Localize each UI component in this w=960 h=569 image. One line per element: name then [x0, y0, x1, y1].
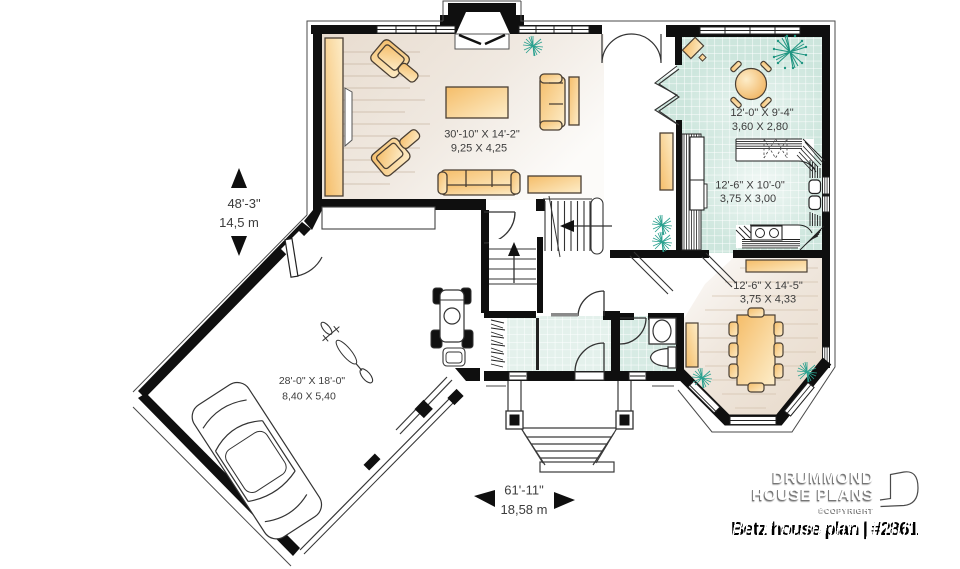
svg-text:30'-10" X 14'-2": 30'-10" X 14'-2" — [444, 129, 520, 141]
svg-text:12'-6" X 14'-5": 12'-6" X 14'-5" — [733, 280, 803, 292]
svg-text:18,58 m: 18,58 m — [501, 502, 548, 517]
svg-text:3,60 X 2,80: 3,60 X 2,80 — [732, 121, 788, 133]
svg-text:14,5 m: 14,5 m — [219, 215, 259, 230]
svg-text:8,40 X 5,40: 8,40 X 5,40 — [282, 391, 336, 403]
svg-text:3,75 X 3,00: 3,75 X 3,00 — [720, 193, 776, 205]
svg-text:12'-6" X 10'-0": 12'-6" X 10'-0" — [715, 180, 785, 192]
svg-text:9,25 X 4,25: 9,25 X 4,25 — [451, 143, 507, 155]
svg-text:28'-0" X 18'-0": 28'-0" X 18'-0" — [279, 375, 346, 387]
svg-text:12'-0" X 9'-4": 12'-0" X 9'-4" — [730, 107, 793, 119]
svg-text:61'-11": 61'-11" — [504, 483, 544, 498]
svg-text:3,75 X 4,33: 3,75 X 4,33 — [740, 294, 796, 306]
svg-text:48'-3": 48'-3" — [227, 196, 261, 211]
